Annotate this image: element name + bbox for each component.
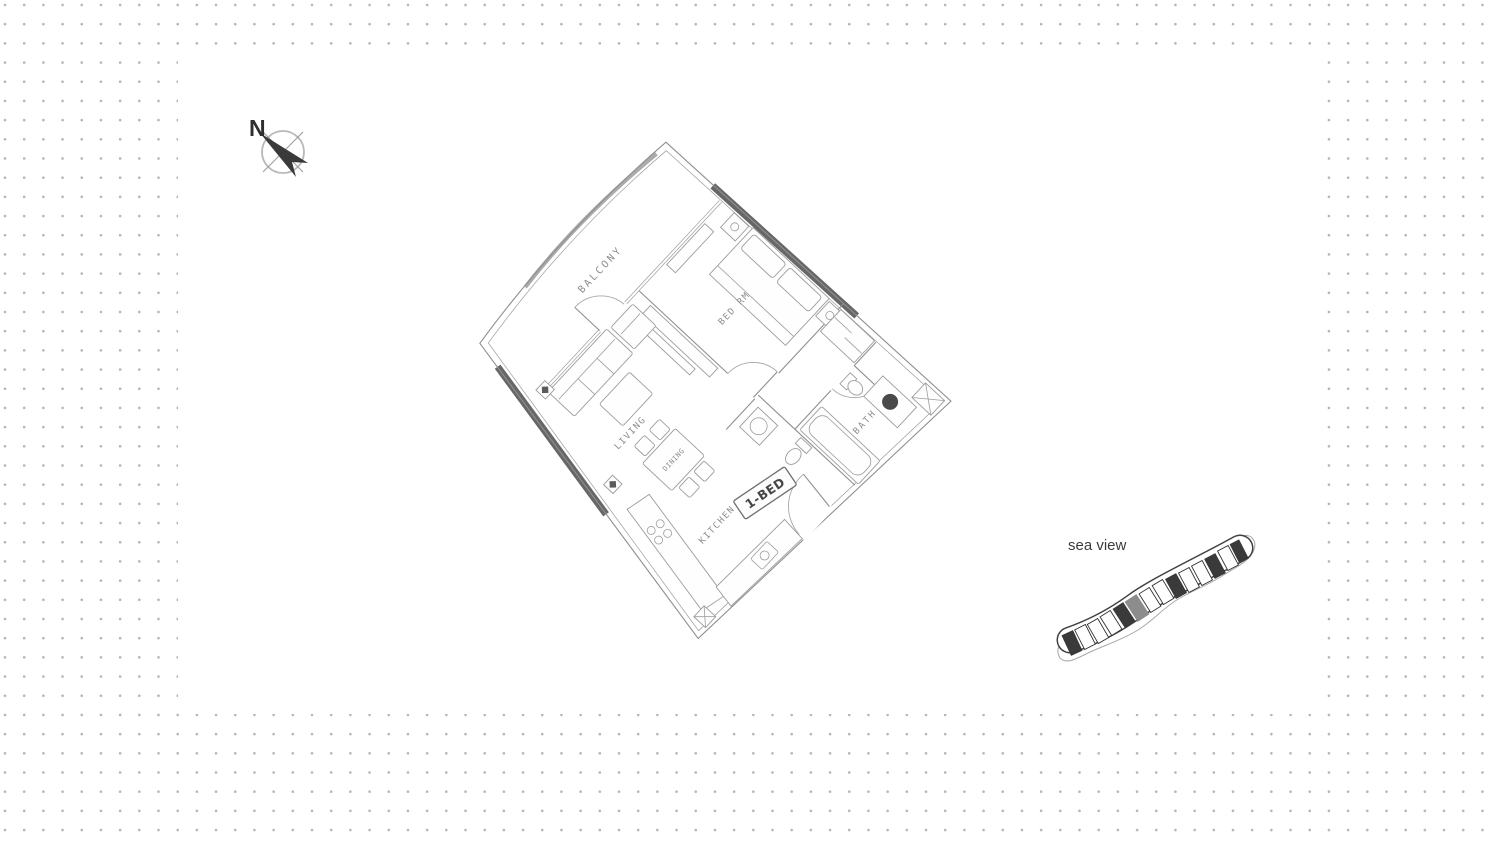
floor-plan-drawing: N [0,0,1500,842]
floor-plan: BALCONY BED RM LIVING DINING KITCHEN BAT… [428,134,951,655]
washer [740,407,778,445]
bedroom-bench [667,224,714,273]
balcony-door-leaf [575,307,600,330]
unit-type-badge: 1-BED [733,467,797,520]
north-arrow: N [249,115,308,177]
balcony-glass-wall [540,200,721,394]
kitchen-counter [611,490,739,614]
balcony-railing [523,148,656,290]
bedroom-door-leaf [753,372,777,398]
key-plan: sea view [1058,535,1255,661]
entry-door-leaf [799,474,833,506]
kitchen-counter [713,517,803,611]
balcony-label: BALCONY [576,244,625,295]
sea-view-label: sea view [1068,537,1127,554]
bed [709,228,829,346]
north-label: N [249,115,266,141]
kitchen-label: KITCHEN [697,504,737,546]
bedroom-door-swing [728,348,777,397]
bath-label: BATH [852,408,880,437]
